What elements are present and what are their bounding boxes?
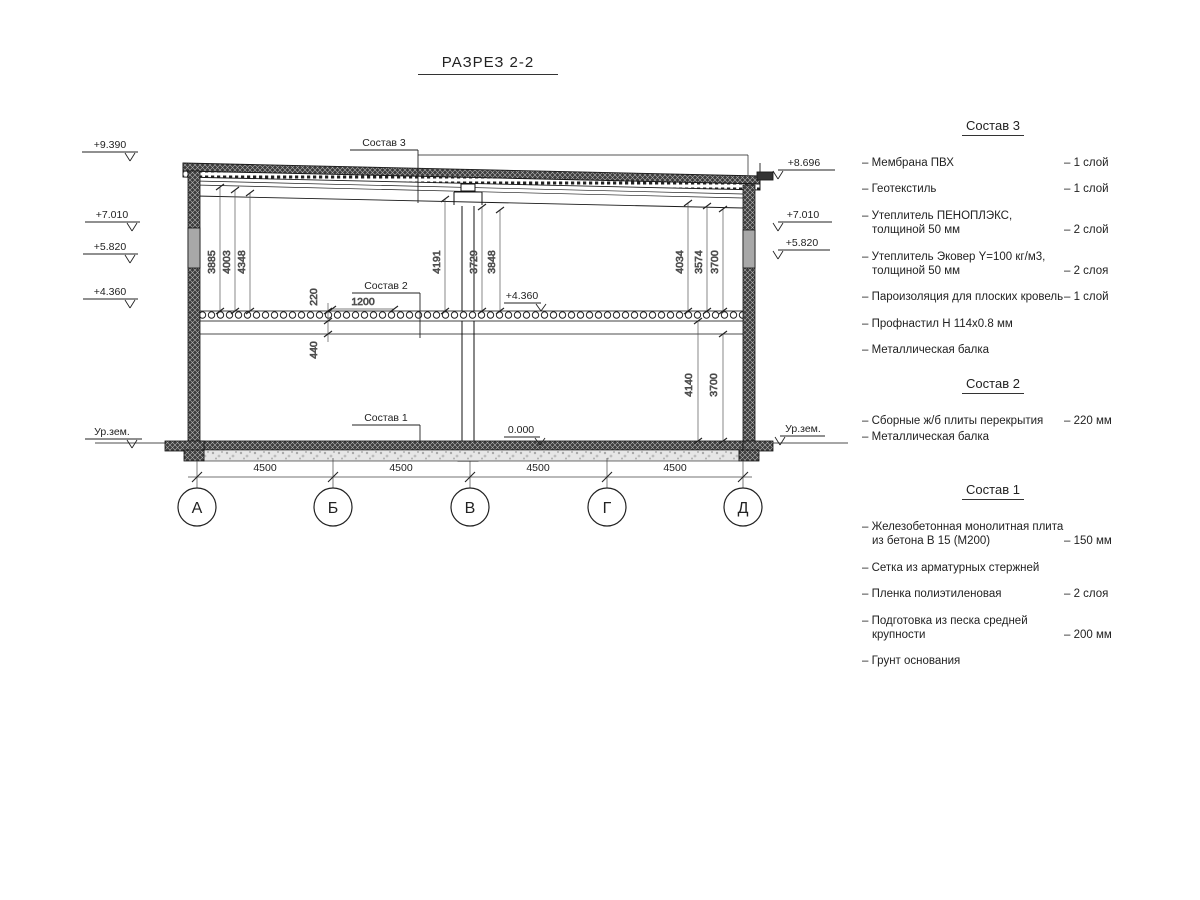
roof-gutter (757, 172, 773, 180)
legend-item-qty: – 2 слоя (1064, 264, 1124, 278)
elevation-mark: +7.010 (773, 209, 832, 231)
legend-item-name: – Мембрана ПВХ (862, 156, 1064, 170)
svg-text:Состав 2: Состав 2 (364, 280, 408, 292)
column-bolt (461, 184, 475, 191)
ground-slab (95, 441, 848, 461)
dim-label: 4348 (236, 250, 248, 274)
legend-item: – Геотекстиль– 1 слой (862, 182, 1124, 196)
elevation-marks-left: +9.390 +7.010 +5.820 +4.360 Ур.зем. (82, 139, 142, 448)
dim-label: 3574 (693, 250, 705, 274)
axis-label: Д (738, 500, 749, 517)
elevation-mark: +4.360 (504, 290, 546, 311)
legend-item: – Металлическая балка (862, 343, 1124, 357)
svg-text:+8.696: +8.696 (788, 157, 821, 169)
dim-label: 3700 (709, 250, 721, 274)
svg-text:Состав 3: Состав 3 (362, 137, 406, 149)
dims-first-floor: 4140 3700 (683, 318, 727, 444)
svg-text:+5.820: +5.820 (786, 237, 819, 249)
elevation-marks-right: +8.696 +7.010 +5.820 Ур.зем. (773, 157, 835, 445)
svg-text:+9.390: +9.390 (94, 139, 127, 151)
legend-item-qty: – 220 мм (1064, 414, 1124, 428)
legend-item: – Пароизоляция для плоских кровель– 1 сл… (862, 290, 1124, 304)
center-column (454, 184, 482, 461)
legend-item: – Утеплитель Эковер Y=100 кг/м3, толщино… (862, 250, 1124, 279)
legend-item-name: – Металлическая балка (862, 430, 1064, 444)
right-foundation-block (739, 450, 759, 461)
elevation-mark: +7.010 (85, 209, 140, 231)
legend-item-qty: – 200 мм (1064, 628, 1124, 642)
left-wall (188, 171, 200, 443)
legend-item-qty: – 1 слой (1064, 182, 1124, 196)
dim-label: 220 (308, 288, 320, 306)
legend-item-qty: – 1 слой (1064, 290, 1124, 304)
legend-item-name: – Пленка полиэтиленовая (862, 587, 1064, 601)
legend-sostav-2: Состав 2 – Сборные ж/б плиты перекрытия–… (862, 376, 1124, 447)
composition-leaders: Состав 3 Состав 2 Состав 1 (350, 137, 420, 443)
legend-item-name: – Сборные ж/б плиты перекрытия (862, 414, 1064, 428)
left-window-band (188, 228, 200, 268)
legend-item: – Подготовка из песка средней крупности–… (862, 614, 1124, 643)
ground-level-mark: Ур.зем. (85, 426, 142, 448)
dim-ticks (216, 184, 727, 314)
legend-item-qty: – 1 слой (1064, 156, 1124, 170)
legend-item-name: – Пароизоляция для плоских кровель (862, 290, 1064, 304)
svg-text:0.000: 0.000 (508, 424, 534, 436)
elevation-mark: +8.696 (773, 157, 835, 179)
dim-label: 4191 (431, 250, 443, 274)
left-foundation-block (184, 450, 204, 461)
dim-label: 1200 (351, 296, 375, 308)
dim-label: 4500 (663, 462, 687, 474)
legend-header: Состав 3 (962, 118, 1024, 136)
legend-header: Состав 1 (962, 482, 1024, 500)
legend-item-qty: – 2 слой (1064, 223, 1124, 237)
dim-label: 4003 (221, 250, 233, 274)
svg-text:+7.010: +7.010 (787, 209, 820, 221)
dims-floor-slab: 220 1200 440 (308, 288, 398, 359)
dim-label: 440 (308, 341, 320, 359)
exterior-walls (188, 171, 755, 443)
legend-item: – Пленка полиэтиленовая– 2 слоя (862, 587, 1124, 601)
legend-item-name: – Железобетонная монолитная плита из бет… (862, 520, 1064, 549)
roof-assembly (183, 155, 773, 208)
axis-label: Б (328, 500, 339, 517)
column-bracket (454, 192, 482, 205)
right-wall (743, 185, 755, 443)
axis-bubbles: А Б В Г Д (178, 488, 762, 526)
dim-label: 3700 (708, 373, 720, 397)
drawing-sheet: РАЗРЕЗ 2-2 (0, 0, 1200, 900)
legend-item-qty: – 150 мм (1064, 534, 1124, 548)
legend-item-name: – Утеплитель ПЕНОПЛЭКС, толщиной 50 мм (862, 209, 1064, 238)
legend-item-name: – Сетка из арматурных стержней (862, 561, 1064, 575)
legend-header: Состав 2 (962, 376, 1024, 394)
legend-item: – Профнастил Н 114х0.8 мм (862, 317, 1124, 331)
dim-label: 3729 (468, 250, 480, 274)
svg-text:+4.360: +4.360 (94, 286, 127, 298)
dim-label: 4500 (253, 462, 277, 474)
legend-item-qty: – 2 слоя (1064, 587, 1124, 601)
legend-item-name: – Геотекстиль (862, 182, 1064, 196)
right-foundation (743, 441, 773, 451)
svg-text:+4.360: +4.360 (506, 290, 539, 302)
legend-item: – Металлическая балка (862, 430, 1124, 444)
dim-label: 3885 (206, 250, 218, 274)
dim-label: 4500 (526, 462, 550, 474)
dims-second-floor: 3885 4003 4348 4191 3729 3848 4034 3574 … (206, 184, 727, 314)
legend-item: – Грунт основания (862, 654, 1124, 668)
elevation-mark: +5.820 (773, 237, 830, 259)
legend-item: – Сборные ж/б плиты перекрытия– 220 мм (862, 414, 1124, 428)
axis-label: В (465, 500, 476, 517)
ground-level-mark: Ур.зем. (775, 423, 825, 445)
svg-text:+5.820: +5.820 (94, 241, 127, 253)
axis-label: Г (603, 500, 612, 517)
legend-item: – Утеплитель ПЕНОПЛЭКС, толщиной 50 мм– … (862, 209, 1124, 238)
legend-item-name: – Металлическая балка (862, 343, 1064, 357)
svg-text:Ур.зем.: Ур.зем. (94, 426, 130, 438)
legend-item: – Мембрана ПВХ– 1 слой (862, 156, 1124, 170)
elevation-mark: +9.390 (82, 139, 138, 161)
dim-label: 3848 (486, 250, 498, 274)
axis-label: А (192, 500, 203, 517)
svg-text:Ур.зем.: Ур.зем. (785, 423, 821, 435)
legend-item-name: – Грунт основания (862, 654, 1064, 668)
dim-label: 4500 (389, 462, 413, 474)
elevation-mark: +5.820 (83, 241, 138, 263)
dim-label: 4034 (674, 250, 686, 274)
leader-sostav-1: Состав 1 (352, 412, 420, 443)
legend-item-name: – Утеплитель Эковер Y=100 кг/м3, толщино… (862, 250, 1064, 279)
left-foundation (165, 441, 204, 451)
legend-sostav-1: Состав 1 – Железобетонная монолитная пли… (862, 482, 1124, 681)
legend-sostav-3: Состав 3 – Мембрана ПВХ– 1 слой – Геотек… (862, 118, 1124, 369)
floor-slab (200, 311, 743, 334)
svg-text:Состав 1: Состав 1 (364, 412, 408, 424)
legend-item: – Железобетонная монолитная плита из бет… (862, 520, 1124, 549)
legend-item-name: – Подготовка из песка средней крупности (862, 614, 1064, 643)
legend-item: – Сетка из арматурных стержней (862, 561, 1124, 575)
dim-label: 4140 (683, 373, 695, 397)
svg-text:+7.010: +7.010 (96, 209, 129, 221)
legend-item-name: – Профнастил Н 114х0.8 мм (862, 317, 1064, 331)
bottom-dimension-chain: 4500 4500 4500 4500 (188, 458, 752, 488)
elevation-mark: +4.360 (83, 286, 138, 308)
right-window-band (743, 230, 755, 268)
